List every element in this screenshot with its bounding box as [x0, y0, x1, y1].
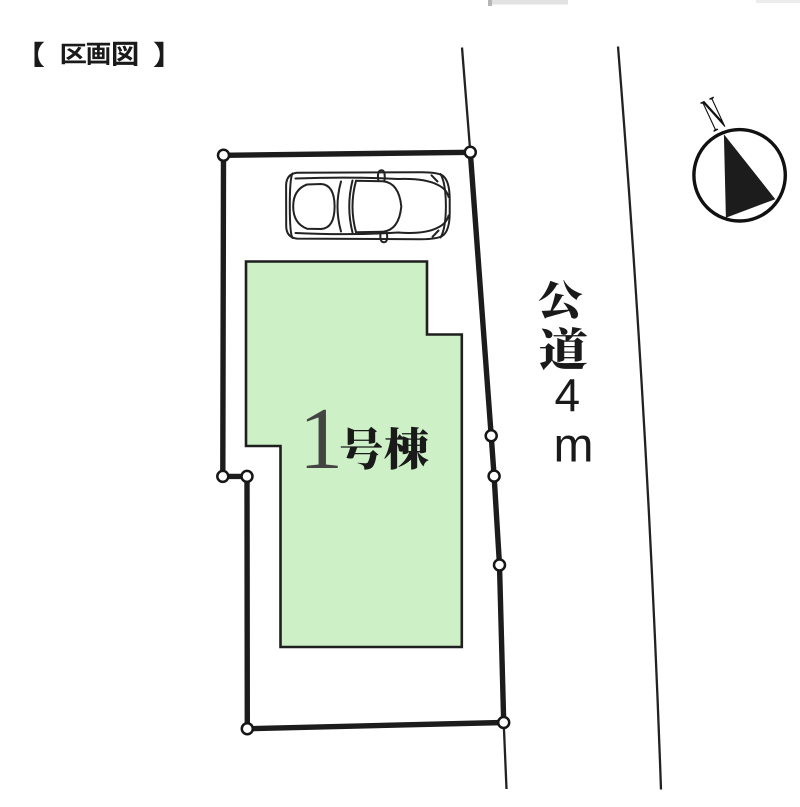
- svg-text:4: 4: [555, 369, 581, 421]
- svg-text:m: m: [554, 420, 594, 473]
- svg-text:1: 1: [299, 391, 343, 488]
